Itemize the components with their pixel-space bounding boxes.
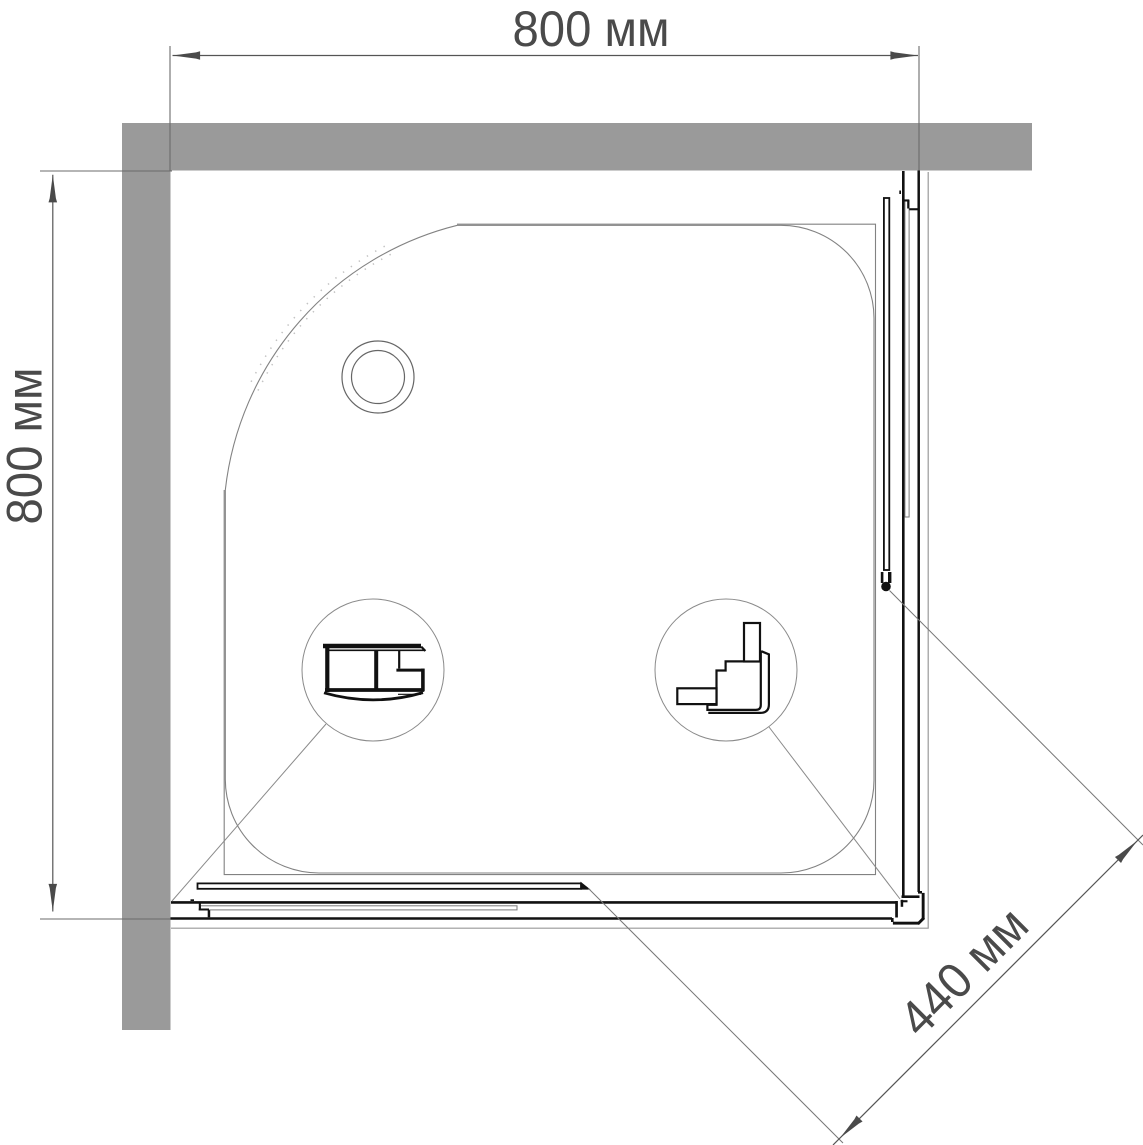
svg-text:800 мм: 800 мм [513, 1, 670, 57]
svg-text:800 мм: 800 мм [0, 368, 53, 525]
